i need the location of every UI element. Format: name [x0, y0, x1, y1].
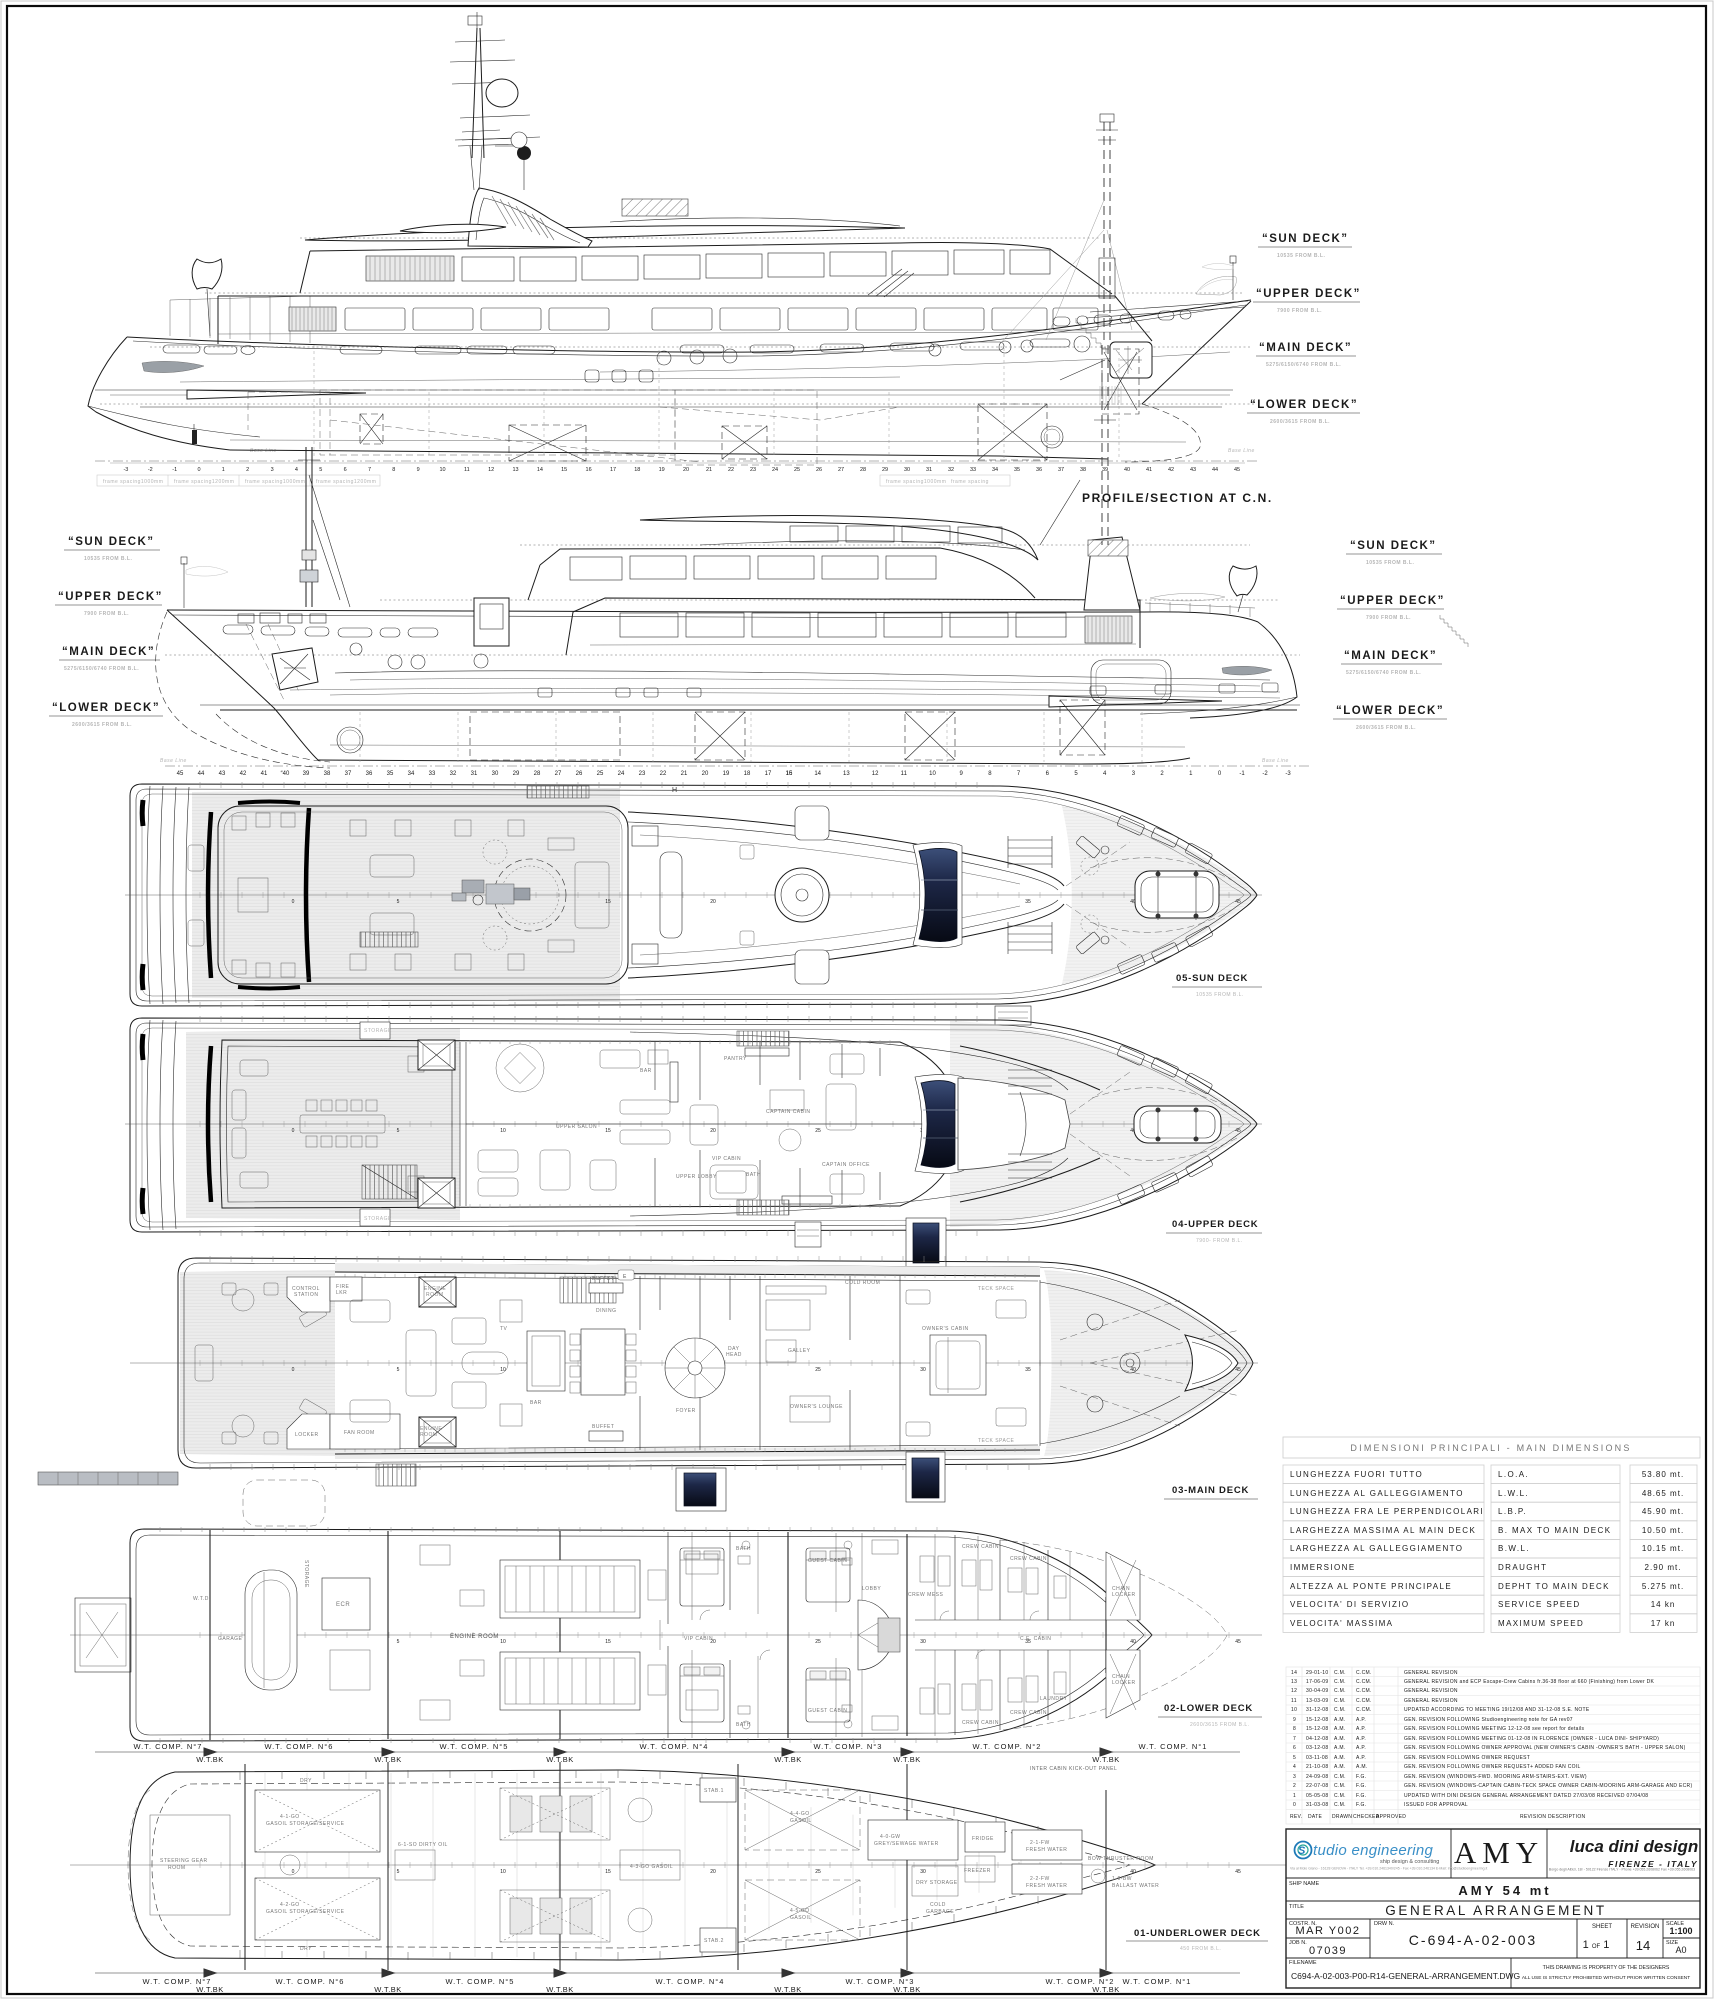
svg-text:W.T. COMP. N°3: W.T. COMP. N°3 [814, 1742, 883, 1751]
svg-text:frame spacing1000mm: frame spacing1000mm [886, 479, 946, 485]
svg-text:W.T.BK: W.T.BK [546, 1985, 574, 1994]
svg-text:ship design & consulting: ship design & consulting [1380, 1859, 1439, 1865]
svg-text:4-5-GO: 4-5-GO [790, 1908, 810, 1914]
svg-text:25: 25 [815, 1367, 821, 1373]
svg-text:A.M.: A.M. [1334, 1755, 1345, 1761]
svg-text:BAR: BAR [530, 1400, 542, 1406]
svg-text:LUNGHEZZA FRA LE PERPENDICOLAR: LUNGHEZZA FRA LE PERPENDICOLARI [1290, 1507, 1484, 1516]
svg-text:L.B.P.: L.B.P. [1498, 1507, 1527, 1516]
svg-text:45: 45 [177, 771, 184, 777]
svg-text:C694-A-02-003-P00-R14-GENERAL-: C694-A-02-003-P00-R14-GENERAL-ARRANGEMEN… [1291, 1971, 1520, 1981]
svg-text:Base Line: Base Line [160, 758, 187, 764]
svg-text:7900 FROM B.L.: 7900 FROM B.L. [84, 611, 129, 617]
svg-text:BOW THRUSTER ROOM: BOW THRUSTER ROOM [1088, 1856, 1154, 1862]
svg-text:40: 40 [1124, 467, 1130, 473]
svg-text:-1: -1 [172, 467, 177, 473]
svg-text:ISSUED FOR APPROVAL: ISSUED FOR APPROVAL [1404, 1802, 1468, 1808]
svg-text:10: 10 [929, 771, 936, 777]
svg-text:-3: -3 [123, 467, 128, 473]
svg-text:C.CM.: C.CM. [1356, 1670, 1372, 1676]
svg-text:“MAIN DECK”: “MAIN DECK” [1344, 650, 1437, 662]
svg-text:18: 18 [634, 467, 640, 473]
svg-text:20: 20 [702, 771, 709, 777]
svg-text:10535 FROM B.L.: 10535 FROM B.L. [1366, 560, 1414, 566]
svg-text:C.CM.: C.CM. [1356, 1707, 1372, 1713]
svg-text:03-MAIN DECK: 03-MAIN DECK [1172, 1485, 1249, 1496]
svg-text:4: 4 [295, 467, 298, 473]
svg-text:45: 45 [1235, 1367, 1241, 1373]
svg-text:14: 14 [1636, 1938, 1650, 1953]
svg-text:STAB.2: STAB.2 [704, 1938, 724, 1944]
svg-text:07039: 07039 [1309, 1945, 1347, 1957]
svg-text:9: 9 [1293, 1717, 1296, 1723]
svg-text:04-UPPER DECK: 04-UPPER DECK [1172, 1219, 1258, 1230]
svg-text:CREW MESS: CREW MESS [908, 1592, 944, 1598]
svg-text:14 kn: 14 kn [1651, 1600, 1676, 1609]
svg-text:GEN. REVISION FOLLOWING MEETIN: GEN. REVISION FOLLOWING MEETING 01-12-08… [1404, 1736, 1659, 1742]
svg-text:25: 25 [815, 1128, 821, 1134]
svg-text:GUEST CABIN: GUEST CABIN [808, 1558, 847, 1564]
svg-text:W.T. COMP. N°6: W.T. COMP. N°6 [276, 1977, 345, 1986]
svg-text:35: 35 [1014, 467, 1020, 473]
svg-text:ALTEZZA AL PONTE PRINCIPALE: ALTEZZA AL PONTE PRINCIPALE [1290, 1582, 1452, 1591]
svg-text:W.T.BK: W.T.BK [893, 1755, 921, 1764]
svg-text:25: 25 [597, 771, 604, 777]
svg-text:C.M.: C.M. [1334, 1698, 1346, 1704]
svg-text:W.T.BK: W.T.BK [1092, 1755, 1120, 1764]
svg-text:6-1-SO DIRTY OIL: 6-1-SO DIRTY OIL [398, 1842, 448, 1848]
svg-text:A.P.: A.P. [1356, 1745, 1366, 1751]
svg-text:GEN. REVISION FOLLOWING OWNER: GEN. REVISION FOLLOWING OWNER REQUEST+ A… [1404, 1764, 1581, 1770]
svg-text:4-0-GW: 4-0-GW [880, 1834, 901, 1840]
svg-text:45: 45 [1235, 1639, 1241, 1645]
svg-text:14: 14 [537, 467, 543, 473]
svg-text:DRW N.: DRW N. [1374, 1921, 1395, 1927]
svg-text:24: 24 [618, 771, 625, 777]
svg-text:41: 41 [261, 771, 268, 777]
svg-text:29-01-10: 29-01-10 [1306, 1670, 1328, 1676]
svg-text:A0: A0 [1675, 1945, 1686, 1955]
svg-text:F.G.: F.G. [1356, 1802, 1366, 1808]
svg-text:frame spacing1000mm: frame spacing1000mm [103, 479, 163, 485]
svg-text:H: H [672, 787, 677, 794]
svg-text:10535 FROM B.L.: 10535 FROM B.L. [1277, 253, 1325, 259]
svg-text:43: 43 [1190, 467, 1196, 473]
svg-text:30: 30 [920, 1367, 926, 1373]
svg-text:GASOIL: GASOIL [790, 1818, 812, 1824]
svg-text:STORAGE: STORAGE [303, 1560, 309, 1588]
svg-text:A.P.: A.P. [1356, 1726, 1366, 1732]
svg-text:PROFILE/SECTION AT C.N.: PROFILE/SECTION AT C.N. [1082, 491, 1273, 505]
svg-text:5: 5 [397, 1128, 400, 1134]
svg-text:42: 42 [240, 771, 247, 777]
svg-text:19: 19 [723, 771, 730, 777]
svg-text:“SUN DECK”: “SUN DECK” [1350, 540, 1437, 552]
svg-text:37: 37 [345, 771, 352, 777]
svg-text:UPPER LOBBY: UPPER LOBBY [676, 1174, 717, 1180]
svg-text:48.65 mt.: 48.65 mt. [1642, 1489, 1684, 1498]
svg-text:8: 8 [1293, 1726, 1296, 1732]
svg-text:17: 17 [765, 771, 772, 777]
svg-text:REV.: REV. [1290, 1814, 1302, 1820]
svg-text:BATH: BATH [736, 1546, 751, 1552]
svg-text:30-04-09: 30-04-09 [1306, 1688, 1328, 1694]
svg-text:BUFFET: BUFFET [592, 1424, 614, 1430]
svg-text:BAR: BAR [640, 1068, 652, 1074]
svg-text:10: 10 [1291, 1707, 1297, 1713]
svg-text:15-12-08: 15-12-08 [1306, 1726, 1328, 1732]
svg-text:13: 13 [512, 467, 518, 473]
svg-text:GEN. REVISION FOLLOWING OWNER: GEN. REVISION FOLLOWING OWNER APPROVAL (… [1404, 1745, 1686, 1751]
svg-text:23: 23 [639, 771, 646, 777]
svg-text:32: 32 [948, 467, 954, 473]
svg-text:30: 30 [904, 467, 910, 473]
svg-text:GENERAL REVISION: GENERAL REVISION [1404, 1698, 1458, 1704]
svg-text:E: E [623, 1274, 627, 1280]
svg-text:27: 27 [838, 467, 844, 473]
svg-text:10: 10 [500, 1639, 506, 1645]
svg-text:BUFFET: BUFFET [592, 1276, 614, 1282]
svg-text:W.T.BK: W.T.BK [893, 1985, 921, 1994]
svg-text:GEN. REVISION FOLLOWING OWNER: GEN. REVISION FOLLOWING OWNER REQUEST [1404, 1755, 1530, 1761]
svg-text:FRIDGE: FRIDGE [972, 1836, 994, 1842]
svg-text:FRESH WATER: FRESH WATER [1026, 1883, 1067, 1889]
svg-text:40: 40 [1130, 1639, 1136, 1645]
svg-text:34: 34 [992, 467, 998, 473]
svg-text:CREW CABIN: CREW CABIN [1010, 1710, 1047, 1716]
svg-text:25: 25 [794, 467, 800, 473]
svg-text:7900 FROM B.L.: 7900 FROM B.L. [1366, 615, 1411, 621]
svg-text:GENERAL REVISION: GENERAL REVISION [1404, 1688, 1458, 1694]
svg-text:25: 25 [815, 1869, 821, 1875]
svg-text:31: 31 [926, 467, 932, 473]
svg-text:15: 15 [605, 1869, 611, 1875]
svg-text:0: 0 [1293, 1802, 1296, 1808]
svg-text:5275/6150/6740 FROM B.L.: 5275/6150/6740 FROM B.L. [64, 666, 139, 672]
svg-text:01-UNDERLOWER DECK: 01-UNDERLOWER DECK [1134, 1928, 1261, 1939]
svg-text:LOCKER: LOCKER [295, 1432, 319, 1438]
svg-text:45: 45 [1235, 899, 1241, 905]
svg-text:32: 32 [450, 771, 457, 777]
svg-text:C.M.: C.M. [1334, 1688, 1346, 1694]
svg-text:LARGHEZZA MASSIMA AL MAIN DECK: LARGHEZZA MASSIMA AL MAIN DECK [1290, 1526, 1476, 1535]
svg-text:“LOWER DECK”: “LOWER DECK” [52, 702, 160, 714]
svg-text:PANTRY: PANTRY [724, 1056, 747, 1062]
svg-text:FAN ROOM: FAN ROOM [344, 1430, 375, 1436]
svg-text:IMMERSIONE: IMMERSIONE [1290, 1563, 1356, 1572]
svg-text:frame spacing1200mm: frame spacing1200mm [316, 479, 376, 485]
svg-text:INTER CABIN KICK-OUT PANEL: INTER CABIN KICK-OUT PANEL [1030, 1766, 1117, 1772]
svg-text:SHEET: SHEET [1592, 1924, 1612, 1930]
svg-text:DINING: DINING [596, 1308, 617, 1314]
svg-text:05-05-08: 05-05-08 [1306, 1793, 1328, 1799]
svg-text:STORAGE: STORAGE [364, 1216, 392, 1222]
svg-text:17 kn: 17 kn [1651, 1619, 1676, 1628]
svg-text:GASOIL STORAGE/SERVICE: GASOIL STORAGE/SERVICE [266, 1909, 345, 1915]
svg-text:43: 43 [219, 771, 226, 777]
svg-text:40: 40 [1130, 1869, 1136, 1875]
svg-text:5: 5 [1293, 1755, 1296, 1761]
svg-text:W.T.BK: W.T.BK [1092, 1985, 1120, 1994]
svg-text:GARAGE: GARAGE [218, 1636, 243, 1642]
svg-text:0: 0 [197, 467, 200, 473]
svg-text:5: 5 [397, 1639, 400, 1645]
svg-text:LUNGHEZZA AL GALLEGGIAMENTO: LUNGHEZZA AL GALLEGGIAMENTO [1290, 1489, 1464, 1498]
svg-text:LKR: LKR [336, 1290, 347, 1296]
svg-text:03-12-08: 03-12-08 [1306, 1745, 1328, 1751]
svg-text:“LOWER DECK”: “LOWER DECK” [1250, 399, 1358, 411]
svg-text:7900- FROM B.L.: 7900- FROM B.L. [1196, 1238, 1243, 1244]
svg-text:LAUNDRY: LAUNDRY [1040, 1696, 1067, 1702]
svg-text:FRESH WATER: FRESH WATER [1026, 1847, 1067, 1853]
svg-text:31-03-08: 31-03-08 [1306, 1802, 1328, 1808]
svg-text:S: S [1298, 1845, 1306, 1857]
svg-text:11: 11 [901, 771, 908, 777]
svg-text:38: 38 [324, 771, 331, 777]
svg-text:24-09-08: 24-09-08 [1306, 1774, 1328, 1780]
svg-text:C.CM.: C.CM. [1356, 1679, 1372, 1685]
svg-text:15-12-08: 15-12-08 [1306, 1717, 1328, 1723]
svg-text:Borgo degli Albizi, 18r - 5012: Borgo degli Albizi, 18r - 50122 Firenze … [1549, 1868, 1695, 1872]
svg-text:7: 7 [368, 467, 371, 473]
svg-text:W.T. COMP. N°1: W.T. COMP. N°1 [1123, 1977, 1192, 1986]
svg-text:TITLE: TITLE [1289, 1904, 1304, 1910]
svg-text:10.50 mt.: 10.50 mt. [1642, 1526, 1684, 1535]
svg-text:13-03-09: 13-03-09 [1306, 1698, 1328, 1704]
svg-text:2-1-FW: 2-1-FW [1030, 1840, 1050, 1846]
svg-text:Base Line: Base Line [250, 448, 277, 454]
svg-text:2: 2 [246, 467, 249, 473]
svg-text:33: 33 [429, 771, 436, 777]
svg-text:FILENAME: FILENAME [1289, 1960, 1317, 1966]
svg-text:GARBAGE: GARBAGE [926, 1909, 954, 1915]
svg-text:22: 22 [728, 467, 734, 473]
svg-text:L.W.L.: L.W.L. [1498, 1489, 1529, 1498]
svg-text:BATH: BATH [746, 1172, 761, 1178]
svg-text:24: 24 [772, 467, 778, 473]
svg-text:22: 22 [660, 771, 667, 777]
svg-text:COLD: COLD [930, 1902, 946, 1908]
svg-text:20: 20 [710, 1869, 716, 1875]
svg-text:2.90 mt.: 2.90 mt. [1645, 1563, 1682, 1572]
svg-text:GEN. REVISION FOLLOWING MEETIN: GEN. REVISION FOLLOWING MEETING 12-12-08… [1404, 1726, 1585, 1732]
svg-text:20: 20 [710, 899, 716, 905]
svg-text:15: 15 [561, 467, 567, 473]
svg-text:W.T. COMP. N°4: W.T. COMP. N°4 [640, 1742, 709, 1751]
svg-text:1: 1 [222, 467, 225, 473]
svg-text:35: 35 [387, 771, 394, 777]
svg-text:DATE: DATE [1308, 1814, 1323, 1820]
svg-text:GEN. REVISION (WINDOWS-CAPTAIN: GEN. REVISION (WINDOWS-CAPTAIN CABIN-TEC… [1404, 1783, 1692, 1789]
svg-text:AMY 54 mt: AMY 54 mt [1458, 1883, 1551, 1898]
svg-text:DRY: DRY [300, 1778, 312, 1784]
svg-text:30: 30 [920, 1869, 926, 1875]
svg-text:C.CM.: C.CM. [1356, 1698, 1372, 1704]
svg-text:JOB N.: JOB N. [1289, 1940, 1307, 1946]
svg-text:FOYER: FOYER [676, 1408, 696, 1414]
svg-text:C.M.: C.M. [1334, 1707, 1346, 1713]
svg-text:A.M.: A.M. [1334, 1726, 1345, 1732]
svg-text:LARGHEZZA AL GALLEGGIAMENTO: LARGHEZZA AL GALLEGGIAMENTO [1290, 1544, 1463, 1553]
svg-text:OWNER'S LOUNGE: OWNER'S LOUNGE [790, 1404, 843, 1410]
svg-text:DRY: DRY [300, 1946, 312, 1952]
svg-text:C.M.: C.M. [1334, 1793, 1346, 1799]
svg-text:TV: TV [500, 1326, 508, 1332]
svg-text:GREY/SEWAGE WATER: GREY/SEWAGE WATER [874, 1841, 939, 1847]
svg-text:luca dini design: luca dini design [1570, 1837, 1698, 1856]
svg-text:ALL USE IS STRICTLY PROHIBITED: ALL USE IS STRICTLY PROHIBITED WITHOUT P… [1522, 1975, 1690, 1981]
svg-text:“LOWER DECK”: “LOWER DECK” [1336, 705, 1444, 717]
svg-text:29: 29 [882, 467, 888, 473]
svg-text:7900 FROM B.L.: 7900 FROM B.L. [1277, 308, 1322, 314]
svg-text:30: 30 [492, 771, 499, 777]
svg-text:23: 23 [750, 467, 756, 473]
svg-text:8: 8 [392, 467, 395, 473]
svg-text:Base Line: Base Line [1228, 448, 1255, 454]
svg-text:CAPTAIN OFFICE: CAPTAIN OFFICE [822, 1162, 870, 1168]
svg-text:“MAIN DECK”: “MAIN DECK” [62, 646, 155, 658]
svg-text:GENERAL ARRANGEMENT: GENERAL ARRANGEMENT [1385, 1903, 1606, 1918]
svg-text:6: 6 [1293, 1745, 1296, 1751]
svg-text:33: 33 [970, 467, 976, 473]
svg-text:W.T. COMP. N°1: W.T. COMP. N°1 [1139, 1742, 1208, 1751]
svg-text:31-12-08: 31-12-08 [1306, 1707, 1328, 1713]
svg-text:SHIP NAME: SHIP NAME [1289, 1881, 1319, 1887]
svg-text:5: 5 [397, 899, 400, 905]
svg-text:0: 0 [292, 899, 295, 905]
svg-text:15: 15 [605, 899, 611, 905]
svg-text:21-10-08: 21-10-08 [1306, 1764, 1328, 1770]
svg-text:450 FROM B.L.: 450 FROM B.L. [1180, 1946, 1221, 1952]
svg-text:14: 14 [1291, 1670, 1297, 1676]
svg-text:REVISION: REVISION [1631, 1924, 1660, 1930]
svg-text:“UPPER DECK”: “UPPER DECK” [58, 591, 163, 603]
svg-text:LUNGHEZZA FUORI TUTTO: LUNGHEZZA FUORI TUTTO [1290, 1470, 1423, 1479]
svg-text:CREW CABIN: CREW CABIN [962, 1720, 999, 1726]
svg-text:tudio engineering: tudio engineering [1313, 1842, 1434, 1859]
svg-text:-3: -3 [1285, 771, 1291, 777]
svg-text:26: 26 [576, 771, 583, 777]
svg-text:CREW CABIN: CREW CABIN [1010, 1556, 1047, 1562]
svg-text:APPROVED: APPROVED [1376, 1814, 1406, 1820]
svg-text:1-0-BW: 1-0-BW [1112, 1876, 1132, 1882]
svg-text:LOBBY: LOBBY [862, 1586, 881, 1592]
svg-text:10535 FROM B.L.: 10535 FROM B.L. [84, 556, 132, 562]
svg-text:15: 15 [605, 1128, 611, 1134]
svg-text:frame spacing: frame spacing [951, 479, 989, 485]
svg-text:16: 16 [586, 467, 592, 473]
svg-text:22-07-08: 22-07-08 [1306, 1783, 1328, 1789]
svg-text:5: 5 [319, 467, 322, 473]
svg-text:12: 12 [1291, 1688, 1297, 1694]
svg-text:GENERAL REVISION: GENERAL REVISION [1404, 1670, 1458, 1676]
svg-text:45: 45 [1235, 1869, 1241, 1875]
svg-text:B. MAX TO MAIN DECK: B. MAX TO MAIN DECK [1498, 1526, 1611, 1535]
svg-text:W.T.BK: W.T.BK [774, 1755, 802, 1764]
svg-text:3: 3 [1293, 1774, 1296, 1780]
svg-text:9: 9 [417, 467, 420, 473]
svg-text:35: 35 [1025, 899, 1031, 905]
svg-text:SERVICE SPEED: SERVICE SPEED [1498, 1600, 1581, 1609]
svg-text:1: 1 [1293, 1793, 1296, 1799]
svg-text:DIMENSIONI PRINCIPALI - MAIN D: DIMENSIONI PRINCIPALI - MAIN DIMENSIONS [1350, 1443, 1631, 1453]
svg-text:36: 36 [1036, 467, 1042, 473]
svg-text:5: 5 [397, 1869, 400, 1875]
svg-text:21: 21 [681, 771, 688, 777]
svg-text:VELOCITA' DI SERVIZIO: VELOCITA' DI SERVIZIO [1290, 1600, 1410, 1609]
svg-text:A.M.: A.M. [1334, 1764, 1345, 1770]
svg-text:10535 FROM B.L.: 10535 FROM B.L. [1196, 992, 1244, 998]
svg-text:STEERING GEAR: STEERING GEAR [160, 1858, 208, 1864]
svg-text:02-LOWER DECK: 02-LOWER DECK [1164, 1703, 1253, 1714]
svg-text:W.T. COMP. N°2: W.T. COMP. N°2 [973, 1742, 1042, 1751]
svg-text:frame spacing1000mm: frame spacing1000mm [245, 479, 305, 485]
svg-text:AMY: AMY [1454, 1835, 1544, 1870]
svg-text:2600/3615 FROM B.L.: 2600/3615 FROM B.L. [1356, 725, 1416, 731]
svg-text:A.M.: A.M. [1356, 1764, 1367, 1770]
svg-text:BATH: BATH [736, 1722, 751, 1728]
svg-text:CAPTAIN CABIN: CAPTAIN CABIN [766, 1109, 810, 1115]
svg-text:VELOCITA' MASSIMA: VELOCITA' MASSIMA [1290, 1619, 1393, 1628]
svg-text:W.T. COMP. N°5: W.T. COMP. N°5 [446, 1977, 515, 1986]
svg-text:Base Line: Base Line [1262, 758, 1289, 764]
svg-text:31: 31 [471, 771, 478, 777]
svg-text:GASOIL: GASOIL [790, 1915, 812, 1921]
svg-text:40: 40 [1130, 1367, 1136, 1373]
svg-text:DRAWN: DRAWN [1332, 1814, 1352, 1820]
svg-text:F.G.: F.G. [1356, 1793, 1366, 1799]
svg-text:A.P.: A.P. [1356, 1736, 1366, 1742]
svg-text:2: 2 [1293, 1783, 1296, 1789]
svg-text:C.E. CABIN: C.E. CABIN [1020, 1636, 1051, 1642]
svg-text:STORAGE: STORAGE [364, 1028, 392, 1034]
svg-text:2600/3615 FROM B.L.: 2600/3615 FROM B.L. [1270, 419, 1330, 425]
svg-text:35: 35 [1025, 1367, 1031, 1373]
svg-text:“40: “40 [281, 771, 290, 777]
svg-text:GASOIL STORAGE/SERVICE: GASOIL STORAGE/SERVICE [266, 1821, 345, 1827]
svg-text:F.G.: F.G. [1356, 1774, 1366, 1780]
svg-text:11: 11 [464, 467, 470, 473]
svg-text:ROOM: ROOM [426, 1292, 444, 1298]
svg-text:A.P.: A.P. [1356, 1755, 1366, 1761]
svg-text:W.T.BK: W.T.BK [774, 1985, 802, 1994]
svg-text:A.M.: A.M. [1334, 1736, 1345, 1742]
svg-text:OWNER'S CABIN: OWNER'S CABIN [922, 1326, 969, 1332]
svg-text:14: 14 [814, 771, 821, 777]
svg-text:VIP CABIN: VIP CABIN [712, 1156, 741, 1162]
svg-text:39: 39 [1102, 467, 1108, 473]
svg-text:10: 10 [500, 1367, 506, 1373]
svg-text:45: 45 [1234, 467, 1240, 473]
svg-text:2600/3615 FROM B.L.: 2600/3615 FROM B.L. [72, 722, 132, 728]
svg-text:C.M.: C.M. [1334, 1802, 1346, 1808]
svg-text:L.O.A.: L.O.A. [1498, 1470, 1529, 1479]
svg-text:TECK SPACE: TECK SPACE [978, 1286, 1014, 1292]
svg-text:C.M.: C.M. [1334, 1774, 1346, 1780]
svg-text:BALLAST WATER: BALLAST WATER [1112, 1883, 1159, 1889]
svg-text:21: 21 [706, 467, 712, 473]
svg-text:5.275 mt.: 5.275 mt. [1642, 1582, 1684, 1591]
svg-text:28: 28 [860, 467, 866, 473]
svg-text:W.T. COMP. N°7: W.T. COMP. N°7 [134, 1742, 203, 1751]
svg-text:C-694-A-02-003: C-694-A-02-003 [1409, 1932, 1537, 1948]
svg-text:42: 42 [1168, 467, 1174, 473]
svg-text:DEPHT TO MAIN DECK: DEPHT TO MAIN DECK [1498, 1582, 1610, 1591]
svg-text:“UPPER DECK”: “UPPER DECK” [1256, 288, 1361, 300]
svg-text:26: 26 [816, 467, 822, 473]
svg-text:53.80 mt.: 53.80 mt. [1642, 1470, 1684, 1479]
svg-text:7: 7 [1293, 1736, 1296, 1742]
